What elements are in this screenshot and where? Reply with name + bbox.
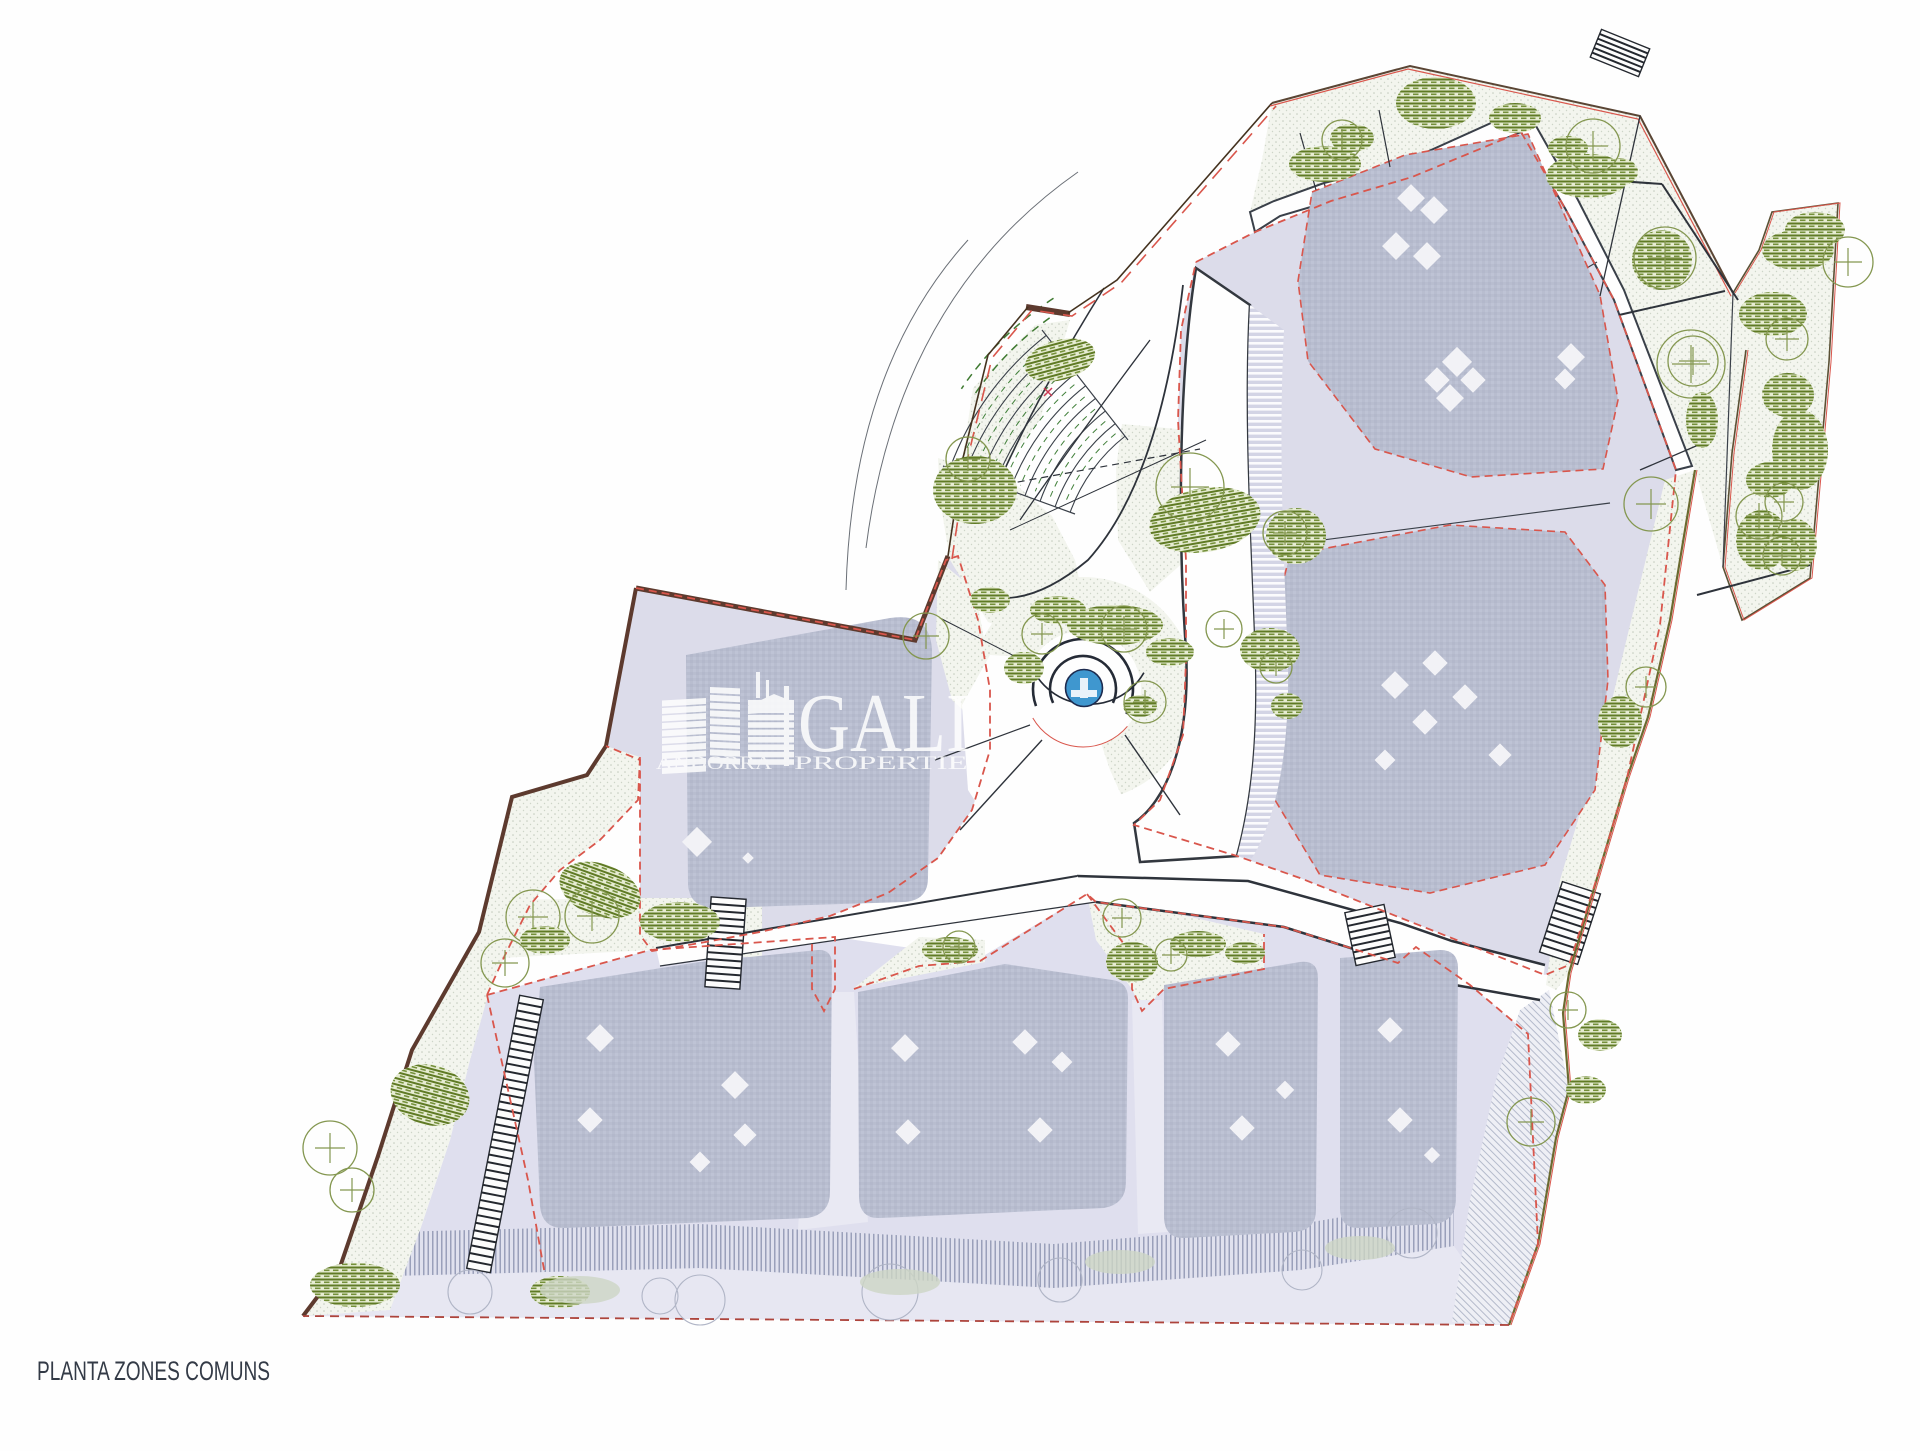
svg-text:ANDORRA: ANDORRA (656, 753, 772, 774)
svg-text:PROPERTIES: PROPERTIES (794, 753, 986, 774)
svg-text:PLANTA ZONES COMUNS: PLANTA ZONES COMUNS (37, 1356, 270, 1386)
